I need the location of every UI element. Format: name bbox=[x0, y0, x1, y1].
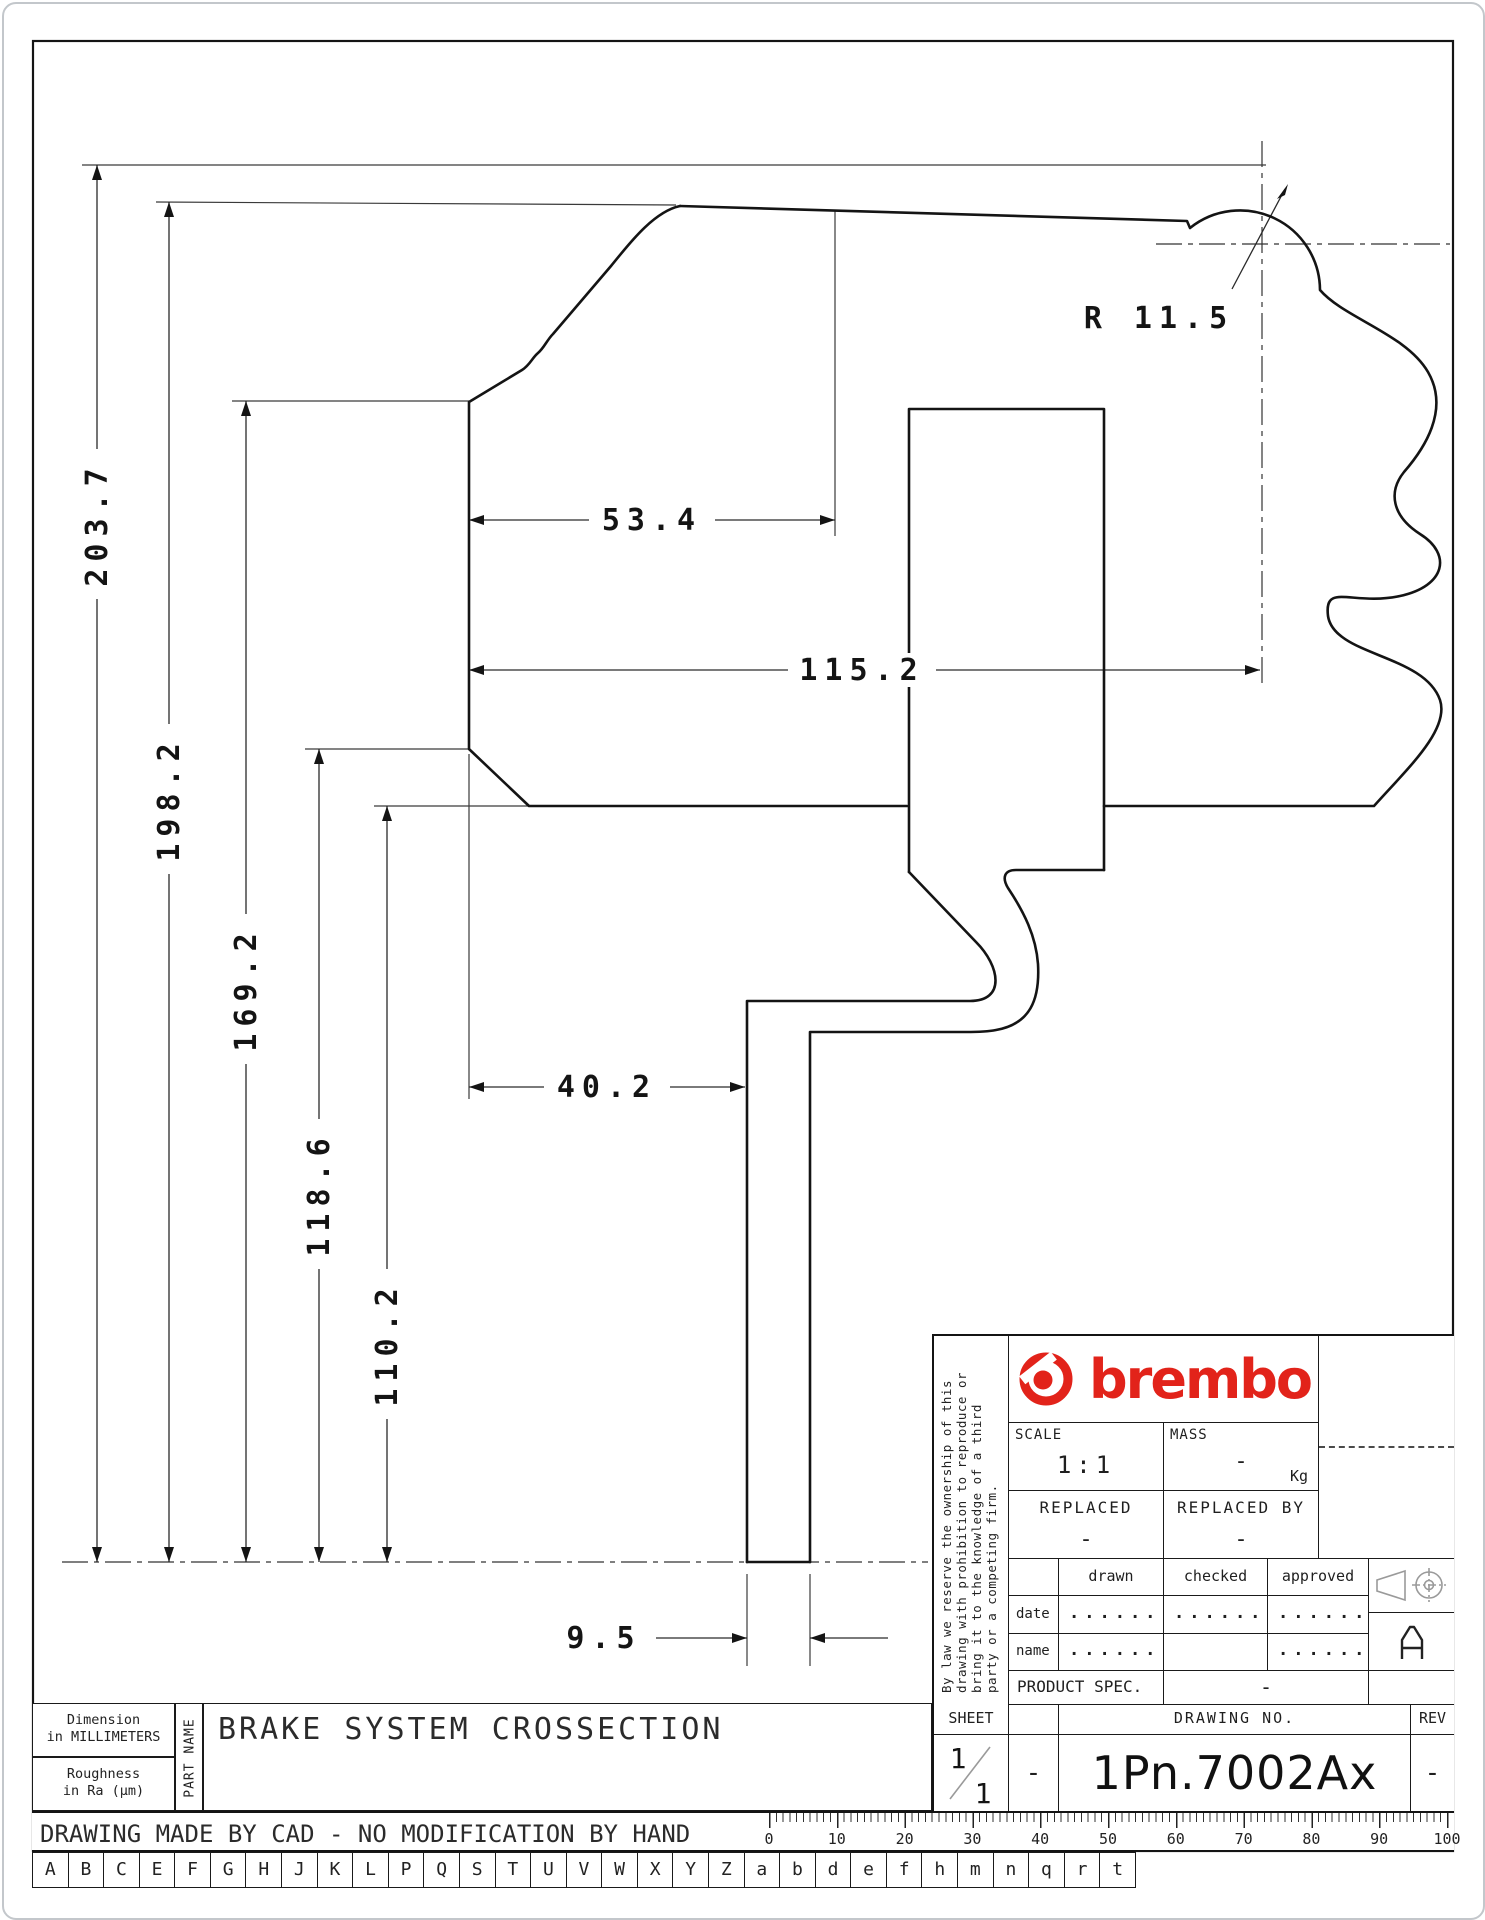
letter-cell: J bbox=[282, 1852, 318, 1888]
fold-mark-cell bbox=[1319, 1336, 1454, 1559]
name-approved-dots: ........ bbox=[1268, 1634, 1369, 1671]
ruler-label: 10 bbox=[828, 1830, 846, 1848]
disclaimer-line: By law we reserve the ownership of this bbox=[939, 1336, 954, 1693]
disclaimer-line: party or a competing firm. bbox=[984, 1336, 999, 1693]
ruler-label: 70 bbox=[1235, 1830, 1253, 1848]
dim-label-53-4: 53.4 bbox=[602, 503, 702, 538]
scale-ruler: 0 10 20 30 40 50 60 70 80 90 100 bbox=[769, 1813, 1447, 1852]
ruler-label: 80 bbox=[1302, 1830, 1320, 1848]
title-block: By law we reserve the ownership of this … bbox=[932, 1334, 1452, 1811]
paper-size-cell bbox=[1369, 1613, 1454, 1671]
dim-label-40-2: 40.2 bbox=[557, 1070, 657, 1105]
brand-wordmark: brembo bbox=[1089, 1348, 1311, 1411]
disclaimer-line: drawing with prohibition to reproduce or bbox=[954, 1336, 969, 1693]
sheet-dash-cell: - bbox=[1009, 1734, 1059, 1811]
sheet-dash-header-cell bbox=[1009, 1705, 1059, 1734]
letter-cell: Y bbox=[673, 1852, 709, 1888]
letter-cell: F bbox=[175, 1852, 211, 1888]
letter-cell: r bbox=[1065, 1852, 1101, 1888]
product-spec-label: PRODUCT SPEC. bbox=[1009, 1671, 1164, 1705]
disclaimer-cell: By law we reserve the ownership of this … bbox=[934, 1336, 1009, 1705]
letter-cell: A bbox=[33, 1852, 69, 1888]
dimension-units-line2: in MILLIMETERS bbox=[33, 1729, 174, 1746]
date-row-label: date bbox=[1009, 1596, 1059, 1634]
letter-cell: U bbox=[531, 1852, 567, 1888]
replaced-label: REPLACED bbox=[1009, 1498, 1163, 1517]
disclaimer-text: By law we reserve the ownership of this … bbox=[934, 1336, 1009, 1705]
part-name-strip: PART NAME bbox=[175, 1703, 203, 1811]
scale-cell: SCALE 1:1 bbox=[1009, 1423, 1164, 1491]
ruler-label: 100 bbox=[1433, 1830, 1460, 1848]
reference-letters-row: A B C E F G H J K L P Q S T U V W X Y Z … bbox=[32, 1852, 1136, 1888]
roughness-line1: Roughness bbox=[33, 1766, 174, 1783]
letter-cell: m bbox=[958, 1852, 994, 1888]
checked-header: checked bbox=[1164, 1559, 1268, 1596]
dim-label-110-2: 110.2 bbox=[370, 1281, 405, 1406]
name-checked-dots bbox=[1164, 1634, 1268, 1671]
replaced-cell: REPLACED - bbox=[1009, 1491, 1164, 1559]
scale-label: SCALE bbox=[1015, 1427, 1062, 1443]
letter-cell: f bbox=[887, 1852, 923, 1888]
letter-cell: q bbox=[1029, 1852, 1065, 1888]
date-drawn-dots: ........ bbox=[1059, 1596, 1164, 1634]
approved-header: approved bbox=[1268, 1559, 1369, 1596]
part-name-label: PART NAME bbox=[183, 1718, 198, 1797]
dim-label-169-2: 169.2 bbox=[229, 926, 264, 1051]
rev-value-cell: - bbox=[1411, 1734, 1454, 1811]
letter-cell: E bbox=[140, 1852, 176, 1888]
first-angle-projection-icon bbox=[1369, 1559, 1452, 1611]
letter-cell: d bbox=[816, 1852, 852, 1888]
replaced-by-cell: REPLACED BY - bbox=[1164, 1491, 1319, 1559]
date-checked-dots: ........ bbox=[1164, 1596, 1268, 1634]
ruler-label: 0 bbox=[764, 1830, 773, 1848]
letter-cell: P bbox=[389, 1852, 425, 1888]
size-letter-glyph bbox=[1395, 1623, 1429, 1661]
roughness-line2: in Ra (µm) bbox=[33, 1783, 174, 1800]
part-name-title: BRAKE SYSTEM CROSSECTION bbox=[218, 1712, 723, 1747]
letter-cell: K bbox=[318, 1852, 354, 1888]
letter-cell: Z bbox=[709, 1852, 745, 1888]
dim-label-198-2: 198.2 bbox=[152, 736, 187, 861]
ruler-label: 40 bbox=[1031, 1830, 1049, 1848]
dim-label-203-7: 203.7 bbox=[80, 461, 115, 586]
name-drawn-dots: ........ bbox=[1059, 1634, 1164, 1671]
sheet-fraction: 1 1 bbox=[934, 1735, 1007, 1810]
name-row-label: name bbox=[1009, 1634, 1059, 1671]
ruler-label: 50 bbox=[1099, 1830, 1117, 1848]
replaced-by-value: - bbox=[1164, 1527, 1318, 1552]
fold-mark-dashes bbox=[1319, 1446, 1454, 1448]
drawing-no-header: DRAWING NO. bbox=[1059, 1705, 1411, 1734]
sign-corner-cell bbox=[1009, 1559, 1059, 1596]
letter-cell: b bbox=[780, 1852, 816, 1888]
drawing-number: 1Pn.7002Ax bbox=[1092, 1746, 1378, 1800]
rev-header: REV bbox=[1411, 1705, 1454, 1734]
letter-cell: Q bbox=[424, 1852, 460, 1888]
dim-label-9-5: 9.5 bbox=[566, 1621, 641, 1656]
dim-label-115-2: 115.2 bbox=[799, 653, 924, 688]
ruler-label: 60 bbox=[1167, 1830, 1185, 1848]
ruler-label: 90 bbox=[1370, 1830, 1388, 1848]
sheet-total: 1 bbox=[975, 1777, 992, 1810]
letter-cell: e bbox=[851, 1852, 887, 1888]
date-approved-dots: ........ bbox=[1268, 1596, 1369, 1634]
letter-cell: a bbox=[745, 1852, 781, 1888]
dimension-units-box: Dimension in MILLIMETERS bbox=[32, 1703, 175, 1757]
letter-cell: V bbox=[567, 1852, 603, 1888]
drawn-header: drawn bbox=[1059, 1559, 1164, 1596]
part-name-box: BRAKE SYSTEM CROSSECTION bbox=[203, 1703, 932, 1811]
letter-cell: h bbox=[922, 1852, 958, 1888]
cad-note: DRAWING MADE BY CAD - NO MODIFICATION BY… bbox=[40, 1820, 690, 1848]
letter-cell: L bbox=[353, 1852, 389, 1888]
pad-rectangle bbox=[909, 409, 1104, 872]
product-spec-tail-cell bbox=[1369, 1671, 1454, 1705]
roughness-box: Roughness in Ra (µm) bbox=[32, 1757, 175, 1811]
projection-symbol-cell bbox=[1369, 1559, 1454, 1613]
ruler-label: 20 bbox=[896, 1830, 914, 1848]
letter-cell: X bbox=[638, 1852, 674, 1888]
letter-cell: n bbox=[994, 1852, 1030, 1888]
product-spec-value: - bbox=[1164, 1671, 1369, 1705]
disclaimer-line: bring it to the knowledge of a third bbox=[969, 1336, 984, 1693]
mass-unit: Kg bbox=[1290, 1467, 1308, 1485]
letter-cell: W bbox=[602, 1852, 638, 1888]
mass-label: MASS bbox=[1170, 1427, 1208, 1443]
radius-label: R 11.5 bbox=[1084, 301, 1234, 336]
dimension-units-line1: Dimension bbox=[33, 1712, 174, 1729]
sheet-fraction-cell: 1 1 bbox=[934, 1734, 1009, 1811]
profile-top-right bbox=[680, 206, 1441, 806]
letter-cell: H bbox=[246, 1852, 282, 1888]
letter-cell: T bbox=[496, 1852, 532, 1888]
replaced-value: - bbox=[1009, 1527, 1163, 1552]
sheet-page: 203.7 198.2 169.2 118.6 110.2 53.4 115.2… bbox=[2, 2, 1485, 1920]
letter-cell: B bbox=[69, 1852, 105, 1888]
ruler-major-ticks bbox=[769, 1813, 1449, 1828]
brand-cell: brembo bbox=[1009, 1336, 1319, 1423]
replaced-by-label: REPLACED BY bbox=[1164, 1498, 1318, 1517]
letter-cell: t bbox=[1100, 1852, 1136, 1888]
letter-cell: S bbox=[460, 1852, 496, 1888]
cad-note-strip: DRAWING MADE BY CAD - NO MODIFICATION BY… bbox=[32, 1811, 1454, 1852]
mass-cell: MASS - Kg bbox=[1164, 1423, 1319, 1491]
letter-cell: C bbox=[104, 1852, 140, 1888]
scale-value: 1:1 bbox=[1009, 1451, 1163, 1479]
letter-cell: G bbox=[211, 1852, 247, 1888]
drawing-no-cell: 1Pn.7002Ax bbox=[1059, 1734, 1411, 1811]
ruler-label: 30 bbox=[963, 1830, 981, 1848]
sheet-header: SHEET bbox=[934, 1705, 1009, 1734]
dim-label-118-6: 118.6 bbox=[302, 1131, 337, 1256]
sheet-number: 1 bbox=[950, 1742, 967, 1775]
brembo-logo-icon bbox=[1016, 1349, 1076, 1409]
